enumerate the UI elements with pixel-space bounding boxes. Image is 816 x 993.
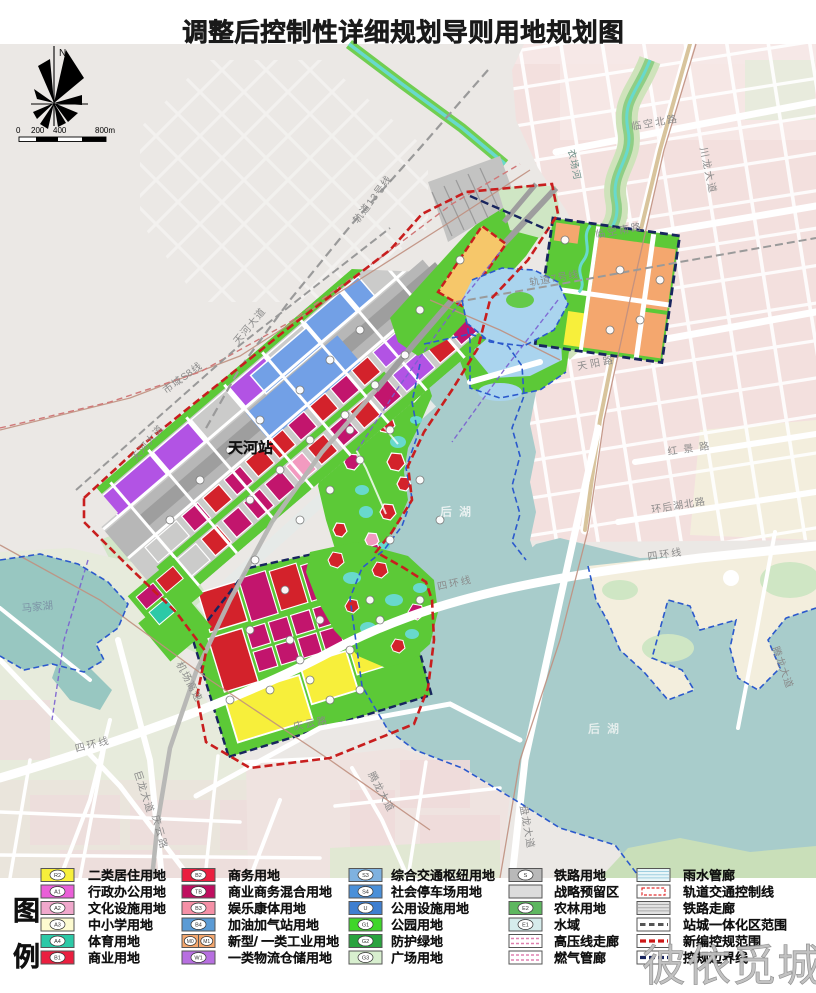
svg-text:W1: W1	[194, 956, 202, 962]
svg-text:G2: G2	[362, 939, 369, 945]
svg-text:E2: E2	[522, 906, 529, 912]
svg-text:G3: G3	[362, 956, 369, 962]
svg-text:A1: A1	[54, 890, 61, 896]
svg-text:400: 400	[53, 126, 67, 135]
svg-text:R2: R2	[54, 873, 61, 879]
svg-text:S4: S4	[362, 890, 369, 896]
svg-text:B3: B3	[195, 906, 202, 912]
svg-text:200: 200	[31, 126, 45, 135]
svg-text:800m: 800m	[95, 126, 115, 135]
svg-text:N: N	[59, 48, 66, 59]
svg-text:A2: A2	[54, 906, 61, 912]
svg-text:M0: M0	[187, 939, 194, 945]
svg-text:S3: S3	[362, 873, 369, 879]
svg-text:TB: TB	[195, 890, 202, 896]
svg-text:U: U	[364, 906, 368, 912]
svg-text:G1: G1	[362, 923, 369, 929]
svg-text:S: S	[524, 873, 528, 879]
svg-text:/: /	[254, 934, 258, 949]
svg-text:M1: M1	[203, 939, 210, 945]
svg-text:B1: B1	[54, 956, 61, 962]
svg-text:B4: B4	[195, 923, 202, 929]
svg-text:A3: A3	[54, 923, 61, 929]
svg-text:0: 0	[16, 126, 21, 135]
svg-text:A4: A4	[54, 939, 61, 945]
svg-text:B2: B2	[195, 873, 202, 879]
svg-text:E1: E1	[522, 923, 529, 929]
